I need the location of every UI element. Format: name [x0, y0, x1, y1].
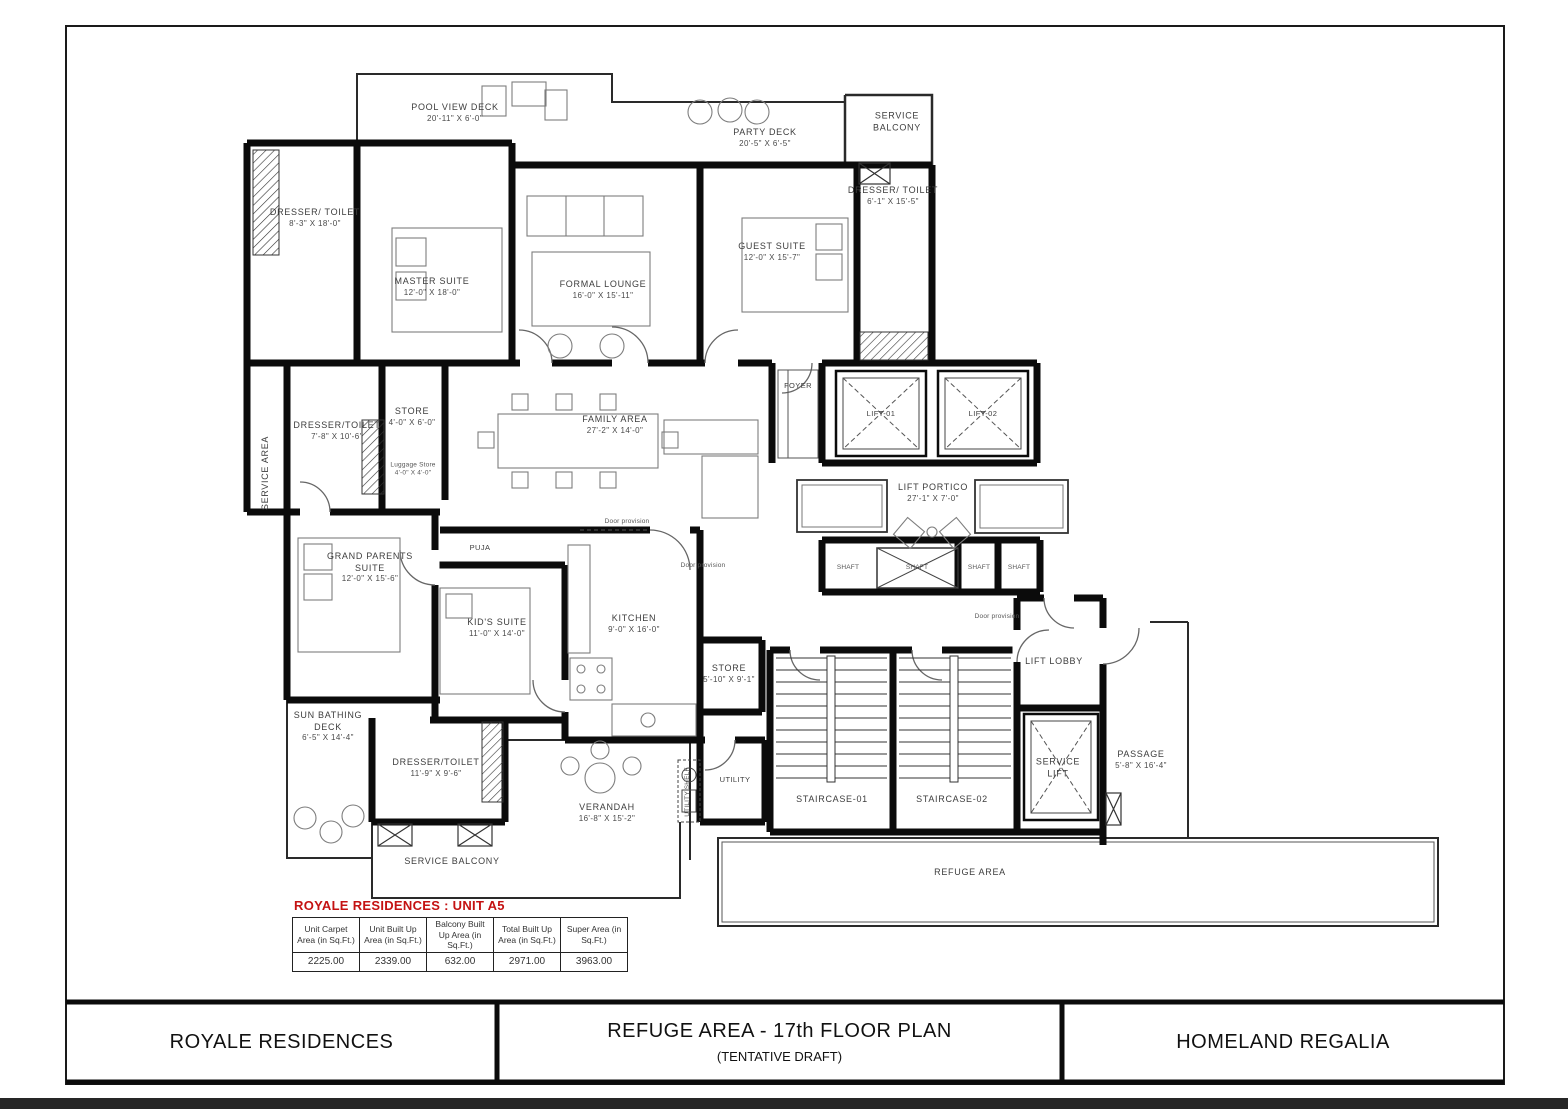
room-label-service-lift: SERVICE LIFT: [1034, 756, 1082, 779]
room-label-lift-02: LIFT-02: [969, 409, 998, 419]
room-label-foyer: FOYER: [784, 381, 812, 391]
unit-table-value: 2339.00: [360, 952, 427, 971]
room-label-lift-portico: LIFT PORTICO27'-1" X 7'-0": [898, 482, 968, 504]
unit-table-header: Super Area (in Sq.Ft.): [561, 918, 628, 953]
room-label-staircase-01: STAIRCASE-01: [796, 794, 868, 806]
room-label-kitchen: KITCHEN9'-0" X 16'-0": [608, 613, 660, 635]
room-label-family-area: FAMILY AREA27'-2" X 14'-0": [582, 414, 647, 436]
unit-table-title: ROYALE RESIDENCES : UNIT A5: [294, 898, 628, 913]
label-door-provision-2: Door provision: [681, 562, 726, 570]
refuge-area-outline: [718, 838, 1438, 926]
room-label-store-1: STORE4'-0" X 6'-0": [389, 406, 436, 428]
room-label-sun-bathing-deck: SUN BATHING DECK6'-5" X 14'-4": [291, 710, 365, 744]
unit-area-table: ROYALE RESIDENCES : UNIT A5 Unit Carpet …: [292, 898, 628, 972]
room-label-formal-lounge: FORMAL LOUNGE16'-0" X 15'-11": [560, 279, 647, 301]
room-label-lift-01: LIFT-01: [867, 409, 896, 419]
floorplan-drawing: [0, 0, 1568, 1109]
room-label-shaft-1: SHAFT: [837, 564, 859, 572]
room-label-staircase-02: STAIRCASE-02: [916, 794, 988, 806]
room-label-utility: UTILITY: [720, 775, 751, 785]
room-label-store-2: STORE5'-10" X 9'-1": [703, 663, 755, 685]
room-label-grand-parents-suite: GRAND PARENTS SUITE12'-0" X 15'-6": [324, 551, 416, 585]
passage-outline: [1103, 622, 1188, 845]
room-label-service-balcony-bottom: SERVICE BALCONY: [404, 856, 499, 868]
room-label-puja: PUJA: [470, 543, 491, 553]
room-label-utility-shelf: UTILITY SHELF: [684, 767, 692, 816]
room-label-kids-suite: KID'S SUITE11'-0" X 14'-0": [467, 617, 526, 639]
unit-table-value: 3963.00: [561, 952, 628, 971]
drawing-sheet: POOL VIEW DECK20'-11" X 6'-0" PARTY DECK…: [0, 0, 1568, 1109]
room-label-service-area: SERVICE AREA: [260, 436, 272, 510]
room-label-guest-suite: GUEST SUITE12'-0" X 15'-7": [738, 241, 806, 263]
room-label-party-deck: PARTY DECK20'-5" X 6'-5": [733, 127, 797, 149]
unit-table-value: 2225.00: [293, 952, 360, 971]
project-name: ROYALE RESIDENCES: [170, 1031, 394, 1054]
room-label-verandah: VERANDAH16'-8" X 15'-2": [579, 802, 636, 824]
room-label-pool-view-deck: POOL VIEW DECK20'-11" X 6'-0": [411, 102, 498, 124]
room-label-luggage-store: Luggage Store4'-0" X 4'-0": [390, 462, 435, 479]
drawing-title: REFUGE AREA - 17th FLOOR PLAN: [607, 1020, 952, 1043]
unit-table-value: 2971.00: [494, 952, 561, 971]
unit-table-header: Unit Built Up Area (in Sq.Ft.): [360, 918, 427, 953]
unit-table-value: 632.00: [427, 952, 494, 971]
room-label-shaft-4: SHAFT: [1008, 564, 1030, 572]
bottom-strip: [0, 1098, 1568, 1109]
room-label-passage: PASSAGE5'-8" X 16'-4": [1115, 749, 1167, 771]
room-label-master-suite: MASTER SUITE12'-0" X 18'-0": [395, 276, 470, 298]
room-label-shaft-3: SHAFT: [968, 564, 990, 572]
title-band-drawing: REFUGE AREA - 17th FLOOR PLAN (TENTATIVE…: [497, 1002, 1062, 1082]
label-door-provision-1: Door provision: [605, 518, 650, 526]
room-label-dresser-toilet-3: DRESSER/TOILET7'-8" X 10'-6": [293, 420, 380, 442]
label-door-provision-3: Door provision: [975, 613, 1020, 621]
door-arcs: [300, 327, 1139, 770]
room-label-dresser-toilet-1: DRESSER/ TOILET8'-3" X 18'-0": [270, 207, 360, 229]
room-label-dresser-toilet-2: DRESSER/ TOILET6'-1" X 15'-5": [848, 185, 938, 207]
unit-table-header: Unit Carpet Area (in Sq.Ft.): [293, 918, 360, 953]
unit-table-header: Total Built Up Area (in Sq.Ft.): [494, 918, 561, 953]
room-label-dresser-toilet-4: DRESSER/TOILET11'-9" X 9'-6": [392, 757, 479, 779]
developer-name: HOMELAND REGALIA: [1176, 1031, 1390, 1054]
title-band-project: ROYALE RESIDENCES: [66, 1002, 497, 1082]
room-label-lift-lobby: LIFT LOBBY: [1025, 656, 1083, 668]
room-label-refuge-area: REFUGE AREA: [934, 867, 1006, 879]
drawing-subtitle: (TENTATIVE DRAFT): [717, 1049, 842, 1064]
room-label-service-balcony-top: SERVICE BALCONY: [868, 110, 926, 133]
room-label-shaft-2: SHAFT: [906, 564, 928, 572]
unit-table-header: Balcony Built Up Area (in Sq.Ft.): [427, 918, 494, 953]
title-band-developer: HOMELAND REGALIA: [1062, 1002, 1504, 1082]
